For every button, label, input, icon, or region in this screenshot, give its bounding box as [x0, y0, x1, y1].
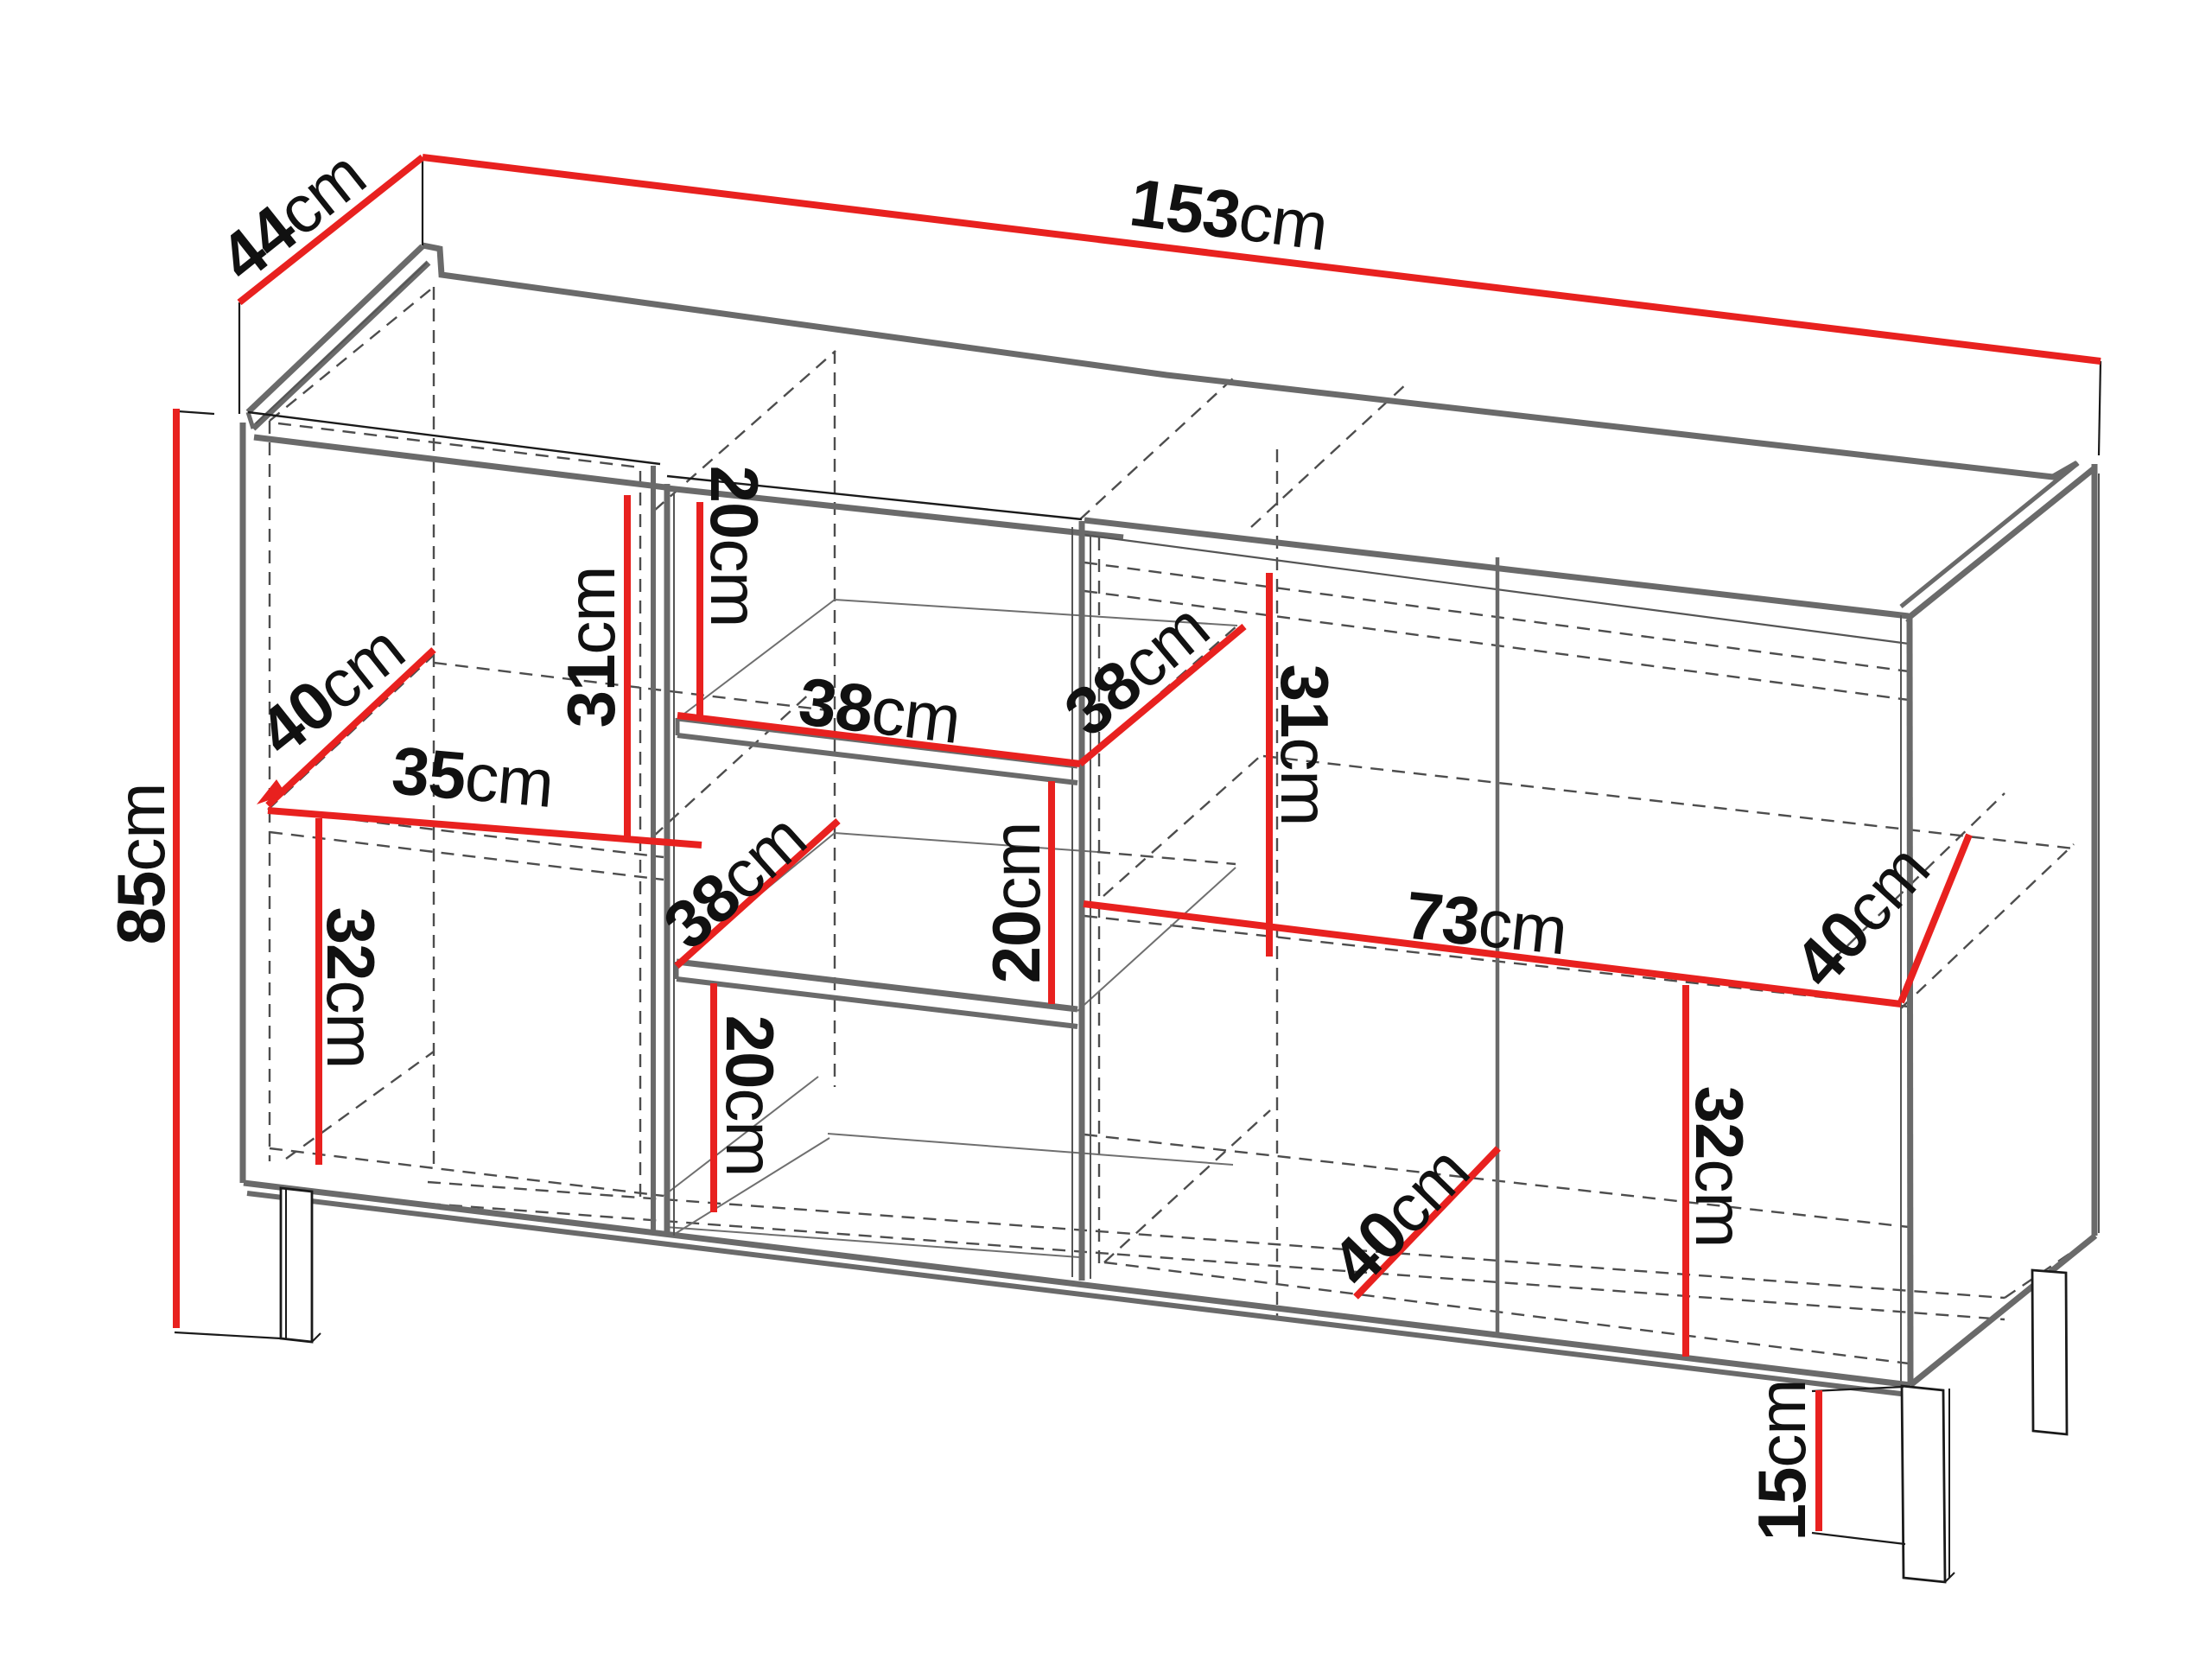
- svg-text:20cm: 20cm: [696, 466, 772, 627]
- svg-text:31cm: 31cm: [1267, 664, 1343, 826]
- svg-text:85cm: 85cm: [103, 784, 179, 945]
- svg-text:20cm: 20cm: [712, 1015, 788, 1177]
- svg-text:20cm: 20cm: [978, 823, 1054, 984]
- svg-text:35cm: 35cm: [389, 732, 556, 822]
- svg-text:31cm: 31cm: [553, 567, 629, 728]
- svg-text:32cm: 32cm: [1681, 1086, 1758, 1248]
- svg-text:15cm: 15cm: [1744, 1380, 1820, 1541]
- svg-text:32cm: 32cm: [313, 907, 389, 1069]
